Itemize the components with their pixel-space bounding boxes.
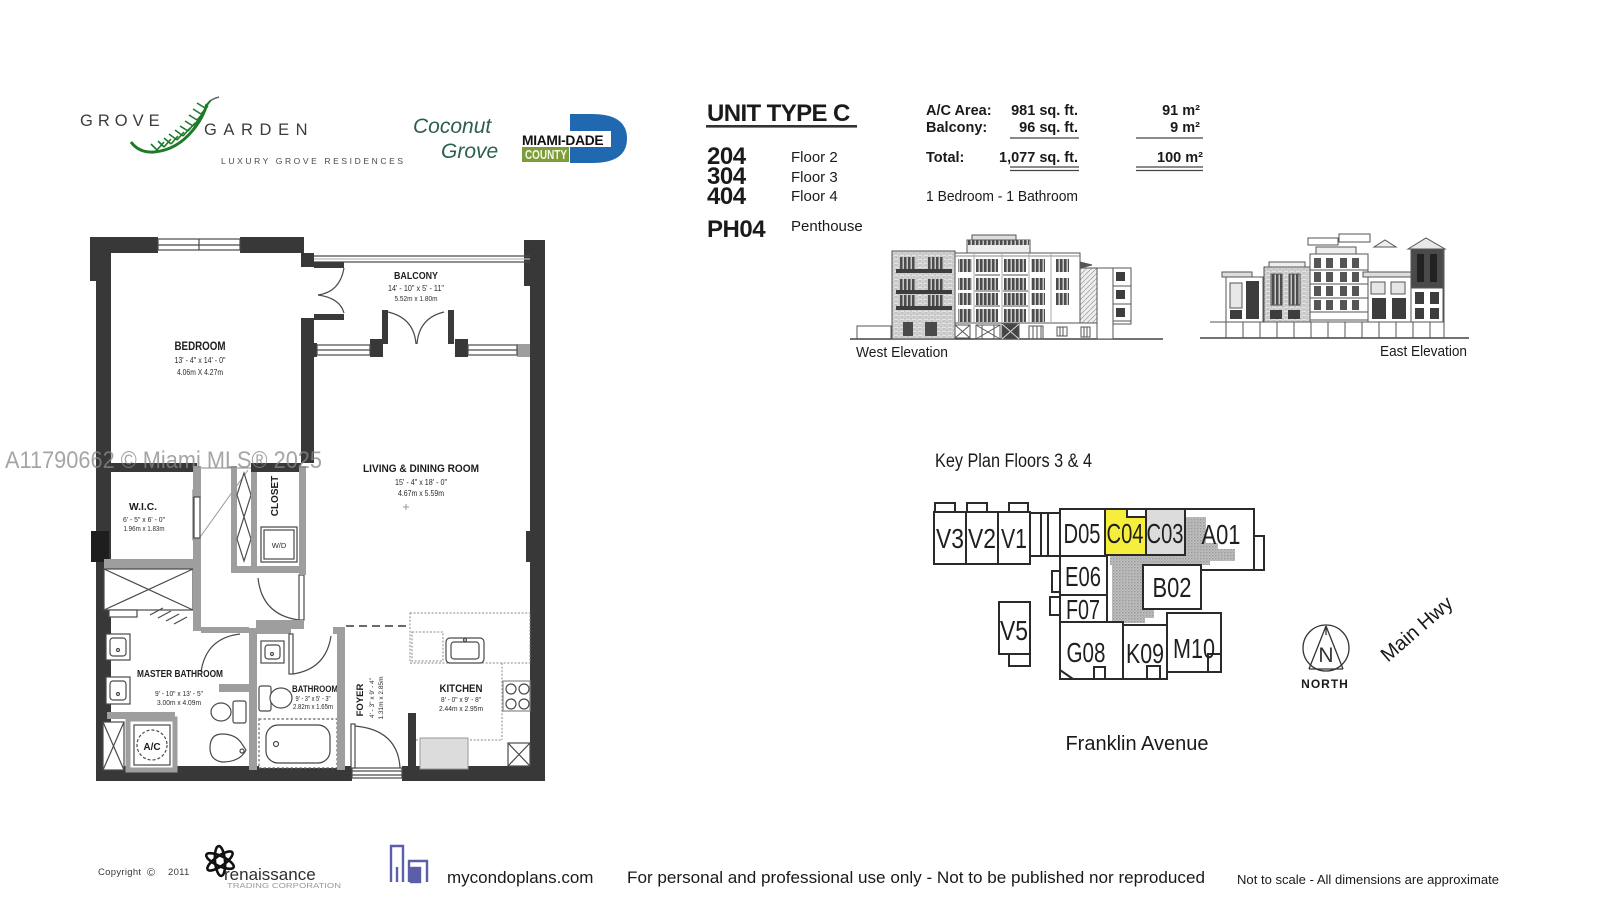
svg-text:COUNTY: COUNTY	[525, 148, 568, 162]
svg-text:FOYER: FOYER	[355, 684, 366, 717]
svg-text:Franklin Avenue: Franklin Avenue	[1065, 733, 1208, 755]
svg-text:A/C Area:: A/C Area:	[926, 103, 992, 119]
svg-text:13' - 4" x 14' - 0": 13' - 4" x 14' - 0"	[175, 355, 226, 365]
svg-text:1.31m x 2.85m: 1.31m x 2.85m	[378, 677, 385, 720]
svg-text:15' - 4" x 18' - 0": 15' - 4" x 18' - 0"	[395, 477, 447, 487]
svg-text:GARDEN: GARDEN	[204, 121, 314, 139]
svg-text:Key Plan Floors 3 & 4: Key Plan Floors 3 & 4	[935, 451, 1092, 472]
svg-text:W/D: W/D	[272, 541, 287, 550]
svg-text:M10: M10	[1173, 633, 1215, 664]
svg-text:MASTER BATHROOM: MASTER BATHROOM	[137, 669, 223, 680]
svg-text:Not to scale - All dimensions: Not to scale - All dimensions are approx…	[1237, 872, 1499, 887]
svg-text:MIAMI-DADE: MIAMI-DADE	[522, 133, 603, 148]
svg-text:C04: C04	[1107, 518, 1144, 549]
svg-text:Grove: Grove	[441, 140, 498, 163]
svg-text:1.96m x 1.83m: 1.96m x 1.83m	[124, 524, 165, 533]
svg-text:NORTH: NORTH	[1301, 677, 1349, 691]
svg-text:C03: C03	[1147, 518, 1184, 549]
svg-text:N: N	[1318, 644, 1333, 667]
svg-text:PH04: PH04	[707, 216, 766, 243]
svg-text:8' - 0" x 9' - 8": 8' - 0" x 9' - 8"	[441, 695, 481, 704]
svg-text:981 sq. ft.: 981 sq. ft.	[1011, 103, 1078, 119]
svg-text:9 m²: 9 m²	[1170, 120, 1200, 136]
svg-text:91 m²: 91 m²	[1162, 103, 1200, 119]
svg-text:4.67m x 5.59m: 4.67m x 5.59m	[398, 488, 444, 498]
svg-text:V1: V1	[1001, 523, 1027, 554]
svg-text:GROVE: GROVE	[80, 112, 165, 130]
svg-text:14' - 10" x 5' - 11": 14' - 10" x 5' - 11"	[388, 284, 444, 293]
svg-text:5.52m x 1.80m: 5.52m x 1.80m	[395, 294, 438, 303]
svg-text:B02: B02	[1153, 572, 1192, 603]
svg-text:6' - 5" x 6' - 0": 6' - 5" x 6' - 0"	[123, 515, 165, 524]
svg-text:2.44m x 2.95m: 2.44m x 2.95m	[439, 704, 483, 713]
svg-text:LIVING & DINING ROOM: LIVING & DINING ROOM	[363, 463, 479, 475]
svg-text:9' - 3" x 5' - 3": 9' - 3" x 5' - 3"	[296, 696, 331, 703]
svg-text:1 Bedroom - 1 Bathroom: 1 Bedroom - 1 Bathroom	[926, 188, 1078, 205]
svg-text:BALCONY: BALCONY	[394, 271, 438, 282]
svg-text:E06: E06	[1065, 561, 1101, 592]
svg-text:Main Hwy: Main Hwy	[1377, 592, 1458, 666]
svg-text:2.82m x 1.65m: 2.82m x 1.65m	[293, 704, 333, 711]
svg-text:3.00m x 4.09m: 3.00m x 4.09m	[157, 698, 201, 707]
svg-text:4' - 3" x 9' - 4": 4' - 3" x 9' - 4"	[369, 677, 376, 718]
svg-text:West Elevation: West Elevation	[856, 344, 948, 361]
svg-text:BATHROOM: BATHROOM	[292, 684, 338, 695]
svg-text:G08: G08	[1067, 637, 1106, 668]
svg-text:F07: F07	[1066, 594, 1100, 625]
svg-text:East Elevation: East Elevation	[1380, 343, 1467, 360]
svg-text:9' - 10" x 13' - 5": 9' - 10" x 13' - 5"	[155, 689, 203, 698]
svg-text:100 m²: 100 m²	[1157, 150, 1203, 166]
svg-text:4.06m X 4.27m: 4.06m X 4.27m	[177, 367, 223, 377]
svg-text:CLOSET: CLOSET	[270, 476, 281, 517]
svg-text:Penthouse: Penthouse	[791, 218, 863, 235]
svg-text:Balcony:: Balcony:	[926, 120, 987, 136]
svg-text:K09: K09	[1126, 638, 1164, 669]
svg-text:TRADING CORPORATION: TRADING CORPORATION	[227, 883, 341, 890]
svg-text:2011: 2011	[168, 867, 190, 878]
svg-text:For personal and professional: For personal and professional use only -…	[627, 869, 1205, 887]
svg-text:Floor 4: Floor 4	[791, 188, 838, 205]
svg-text:Floor 3: Floor 3	[791, 169, 838, 186]
svg-text:D05: D05	[1064, 518, 1101, 549]
svg-text:V2: V2	[968, 523, 996, 554]
svg-text:Coconut: Coconut	[413, 115, 492, 138]
svg-text:A/C: A/C	[143, 742, 160, 753]
svg-text:renaissance: renaissance	[224, 865, 316, 884]
svg-text:LUXURY GROVE RESIDENCES: LUXURY GROVE RESIDENCES	[221, 156, 406, 166]
svg-text:BEDROOM: BEDROOM	[175, 339, 226, 353]
svg-text:96 sq. ft.: 96 sq. ft.	[1019, 120, 1078, 136]
svg-text:Floor 2: Floor 2	[791, 149, 838, 166]
svg-text:UNIT TYPE C: UNIT TYPE C	[707, 100, 850, 127]
svg-text:404: 404	[707, 183, 747, 210]
svg-text:KITCHEN: KITCHEN	[440, 683, 483, 695]
svg-text:A11790662 © Miami MLS® 2025: A11790662 © Miami MLS® 2025	[5, 447, 322, 474]
svg-text:W.I.C.: W.I.C.	[129, 502, 157, 513]
svg-text:Copyright: Copyright	[98, 867, 141, 878]
svg-text:V5: V5	[1000, 615, 1028, 646]
svg-text:A01: A01	[1202, 519, 1241, 550]
svg-text:©: ©	[147, 867, 155, 879]
svg-text:Total:: Total:	[926, 150, 964, 166]
svg-text:V3: V3	[936, 523, 964, 554]
svg-text:1,077 sq. ft.: 1,077 sq. ft.	[999, 150, 1078, 166]
svg-text:mycondoplans.com: mycondoplans.com	[447, 868, 593, 887]
